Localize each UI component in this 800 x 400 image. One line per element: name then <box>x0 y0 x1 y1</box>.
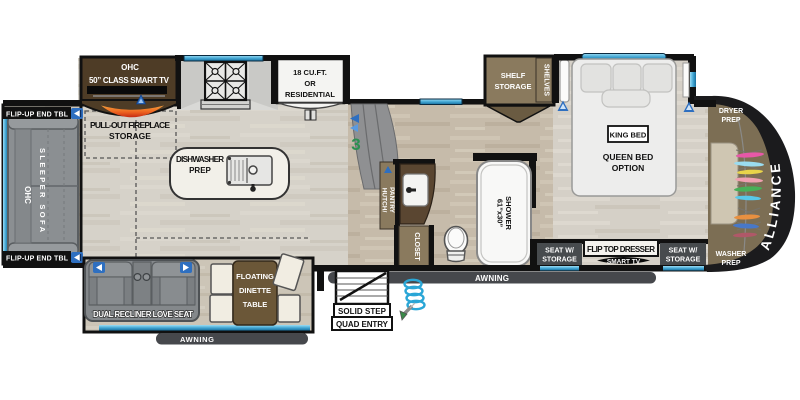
svg-text:DINETTE: DINETTE <box>239 286 271 295</box>
svg-text:50” CLASS SMART TV: 50” CLASS SMART TV <box>89 76 170 85</box>
svg-text:SEAT W/: SEAT W/ <box>669 248 698 255</box>
svg-text:SHELF: SHELF <box>501 71 526 80</box>
svg-text:WASHER: WASHER <box>716 251 747 258</box>
svg-text:PREP: PREP <box>189 166 211 175</box>
svg-text:QUAD ENTRY: QUAD ENTRY <box>336 320 389 329</box>
svg-text:PULL-OUT FIREPLACE: PULL-OUT FIREPLACE <box>90 120 170 130</box>
svg-text:FLIP-UP END TBL: FLIP-UP END TBL <box>6 256 69 263</box>
svg-text:STORAGE: STORAGE <box>109 131 151 141</box>
svg-text:STORAGE: STORAGE <box>495 82 532 91</box>
svg-text:DISHWASHER: DISHWASHER <box>176 155 224 164</box>
svg-text:FLOATING: FLOATING <box>236 272 274 281</box>
svg-text:DUAL RECLINER LOVE SEAT: DUAL RECLINER LOVE SEAT <box>93 310 193 319</box>
svg-text:OPTION: OPTION <box>612 163 645 173</box>
svg-text:SHOWER61”x30”: SHOWER61”x30” <box>496 196 514 230</box>
svg-text:KING BED: KING BED <box>610 131 647 140</box>
svg-text:OHC: OHC <box>121 63 139 72</box>
svg-text:AWNING: AWNING <box>180 335 214 344</box>
svg-text:TABLE: TABLE <box>243 300 267 309</box>
svg-text:CLOSET: CLOSET <box>413 232 420 261</box>
svg-text:QUEEN BED: QUEEN BED <box>603 152 654 162</box>
svg-text:STORAGE: STORAGE <box>666 257 701 264</box>
svg-text:SOLID STEP: SOLID STEP <box>338 307 387 316</box>
svg-text:18 CU.FT.: 18 CU.FT. <box>293 68 327 77</box>
svg-text:FLIP TOP DRESSER: FLIP TOP DRESSER <box>587 245 655 254</box>
svg-text:RESIDENTIAL: RESIDENTIAL <box>285 90 335 99</box>
svg-text:PANTRYHUTCH/: PANTRYHUTCH/ <box>381 187 396 214</box>
svg-text:OR: OR <box>304 79 316 88</box>
svg-text:FLIP-UP END TBL: FLIP-UP END TBL <box>6 112 69 119</box>
svg-text:3: 3 <box>351 135 360 154</box>
svg-text:DRYER: DRYER <box>719 108 743 115</box>
svg-text:STORAGE: STORAGE <box>542 257 577 264</box>
svg-text:SHELVES: SHELVES <box>543 64 550 96</box>
svg-text:SMART TV: SMART TV <box>607 259 641 266</box>
svg-text:AWNING: AWNING <box>475 274 509 283</box>
svg-text:PREP: PREP <box>721 117 740 124</box>
svg-text:PREP: PREP <box>721 260 740 267</box>
svg-text:OHC: OHC <box>23 186 32 204</box>
svg-text:SEAT W/: SEAT W/ <box>545 248 574 255</box>
